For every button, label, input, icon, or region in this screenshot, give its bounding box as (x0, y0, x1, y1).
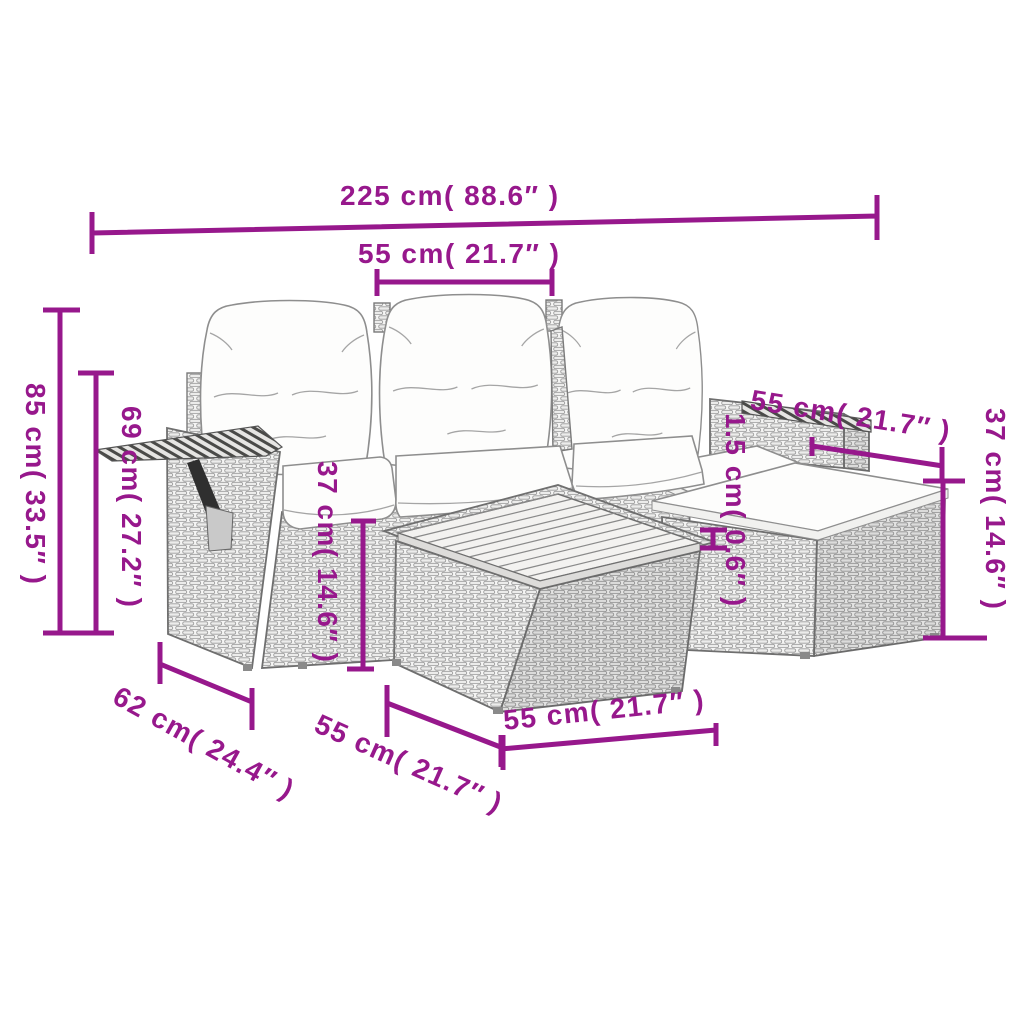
dim-label-seat-width: 55 cm( 21.7″ ) (358, 240, 561, 268)
dim-label-cushion-thickness: 1.5 cm( 0.6″ ) (721, 413, 749, 608)
dim-label-seat-height: 37 cm( 14.6″ ) (313, 461, 341, 664)
dim-label-overall-width: 225 cm( 88.6″ ) (340, 182, 560, 210)
dim-label-total-height: 85 cm( 33.5″ ) (21, 383, 49, 586)
product-dimension-diagram: 225 cm( 88.6″ ) 55 cm( 21.7″ ) 85 cm( 33… (0, 0, 1024, 1024)
dim-label-footstool-height: 37 cm( 14.6″ ) (981, 408, 1009, 611)
dim-line-armrest-height (78, 373, 114, 633)
furniture-illustration (0, 0, 1024, 1024)
dim-line-seat-width (377, 269, 552, 296)
back-cushion-middle (380, 295, 552, 469)
dim-label-armrest-height: 69 cm( 27.2″ ) (117, 406, 145, 609)
